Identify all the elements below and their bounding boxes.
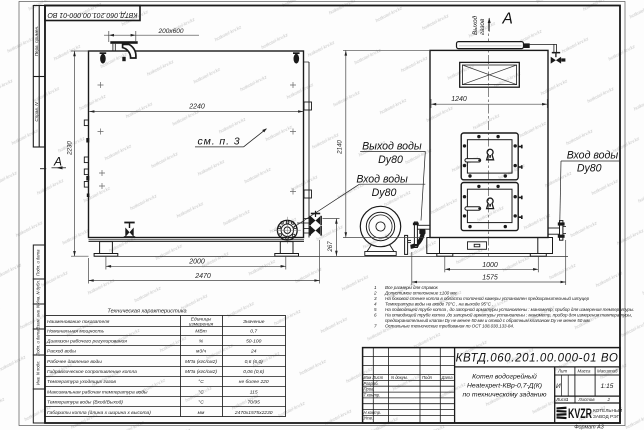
svg-text:см. п. 3: см. п. 3	[198, 136, 241, 148]
svg-text:24: 24	[250, 349, 257, 355]
svg-text:Перв. примен.: Перв. примен.	[34, 26, 39, 57]
svg-text:МВт: МВт	[195, 329, 206, 335]
svg-text:1240: 1240	[451, 96, 467, 103]
svg-text:м3/ч: м3/ч	[196, 349, 206, 355]
svg-text:1575: 1575	[482, 275, 498, 282]
svg-text:Номинальная мощность: Номинальная мощность	[47, 329, 105, 335]
svg-text:2470: 2470	[194, 273, 211, 280]
svg-text:°С: °С	[198, 379, 204, 385]
svg-text:Выход воды: Выход воды	[362, 140, 422, 152]
svg-text:КОТЕЛЬНЫЙ: КОТЕЛЬНЫЙ	[593, 406, 622, 413]
svg-text:1:15: 1:15	[601, 383, 614, 390]
svg-text:2: 2	[607, 397, 611, 402]
svg-text:мм: мм	[198, 411, 205, 416]
svg-text:0,06 (0,6): 0,06 (0,6)	[243, 369, 264, 375]
svg-text:2470х1575х2230: 2470х1575х2230	[234, 410, 273, 416]
svg-text:Максимальная рабочая температу: Максимальная рабочая температура воды	[47, 389, 148, 395]
svg-text:предохранительный клапан Dу н: предохранительный клапан Dу не менее 50 …	[385, 317, 591, 323]
svg-text:Выход: Выход	[471, 15, 479, 35]
svg-text:Расход воды: Расход воды	[47, 349, 76, 355]
svg-text:Гидравлическое сопротивление к: Гидравлическое сопротивление котла	[47, 369, 137, 375]
svg-text:200х600: 200х600	[158, 28, 184, 35]
svg-text:Температура воды на входе 70°: Температура воды на входе 70°С , на выхо…	[385, 302, 493, 307]
svg-text:1000: 1000	[482, 262, 498, 269]
svg-text:50-100: 50-100	[246, 339, 262, 345]
svg-text:2140: 2140	[336, 140, 343, 155]
svg-text:°С: °С	[198, 389, 204, 395]
svg-text:0,6 (6,0): 0,6 (6,0)	[245, 359, 264, 365]
svg-text:Температура уходящих газов: Температура уходящих газов	[47, 379, 116, 385]
svg-text:КВТД.060.201.00.000-01 ВО: КВТД.060.201.00.000-01 ВО	[456, 353, 619, 365]
svg-text:Наименование показателя: Наименование показателя	[47, 319, 110, 325]
svg-text:Масса: Масса	[578, 369, 592, 374]
svg-text:Взам. инв. N: Взам. инв. N	[36, 304, 41, 329]
svg-text:2: 2	[373, 291, 377, 296]
svg-text:На подводящей трубе котла , д: На подводящей трубе котла , до запорной …	[385, 306, 634, 312]
svg-text:И: И	[556, 383, 561, 390]
svg-text:267: 267	[327, 241, 334, 253]
svg-text:Формат А3: Формат А3	[574, 424, 604, 430]
svg-text:Dy80: Dy80	[577, 162, 602, 174]
svg-text:Температура воды (Вход/Выход): Температура воды (Вход/Выход)	[47, 400, 123, 406]
svg-text:2000: 2000	[188, 259, 205, 266]
svg-text:Справ. N: Справ. N	[34, 102, 39, 122]
svg-text:Изм Лист: Изм Лист	[364, 375, 384, 380]
svg-text:KVZR: KVZR	[568, 406, 592, 421]
svg-text:0,7: 0,7	[250, 329, 257, 335]
svg-text:Вход воды: Вход воды	[567, 150, 619, 162]
svg-text:На боковой стенке котла в обла: На боковой стенке котла в области топочн…	[385, 295, 590, 301]
svg-text:Инв. N дубл.: Инв. N дубл.	[36, 280, 41, 304]
svg-text:Лит: Лит	[557, 369, 567, 374]
svg-text:70/95: 70/95	[248, 400, 261, 406]
svg-text:Подп. и дата: Подп. и дата	[36, 249, 41, 276]
svg-text:не более 220: не более 220	[239, 379, 269, 385]
svg-text:Н.контр.: Н.контр.	[364, 410, 382, 415]
svg-text:Пров.: Пров.	[364, 387, 375, 392]
svg-text:Heatexpert-КВр-0,7-Д(К): Heatexpert-КВр-0,7-Д(К)	[467, 383, 542, 390]
svg-text:2230: 2230	[67, 141, 74, 156]
svg-text:2240: 2240	[188, 104, 205, 111]
svg-text:измерения: измерения	[189, 323, 214, 328]
svg-text:газов: газов	[479, 18, 486, 35]
svg-text:%: %	[199, 339, 204, 345]
svg-text:Допустимое отклонение ±100 мм: Допустимое отклонение ±100 мм.	[384, 291, 458, 296]
svg-text:МПа (кгс/см2): МПа (кгс/см2)	[185, 359, 217, 365]
svg-text:А: А	[502, 11, 513, 28]
svg-text:А: А	[53, 155, 62, 169]
svg-text:Рабочее давление воды: Рабочее давление воды	[47, 359, 102, 365]
svg-text:Утв.: Утв.	[364, 416, 374, 421]
svg-text:Т.контр.: Т.контр.	[364, 392, 381, 397]
svg-text:Диапазон рабочего регулировани: Диапазон рабочего регулирования	[46, 339, 127, 345]
svg-text:Разраб.: Разраб.	[364, 381, 379, 386]
svg-text:N докум.: N докум.	[391, 375, 408, 380]
svg-text:ЗАВОД РЭП: ЗАВОД РЭП	[593, 414, 620, 419]
svg-text:Инв. N подл.: Инв. N подл.	[36, 360, 41, 384]
svg-text:МПа (кгс/см2): МПа (кгс/см2)	[185, 369, 217, 375]
svg-text:Котел водогрейный: Котел водогрейный	[472, 373, 537, 381]
svg-text:На отводящей трубе котла ,до з: На отводящей трубе котла ,до запорной ар…	[385, 312, 632, 318]
svg-text:115: 115	[250, 389, 258, 395]
svg-text:Дата: Дата	[441, 375, 454, 380]
svg-text:Значение: Значение	[243, 319, 265, 325]
svg-text:Вход воды: Вход воды	[356, 174, 408, 186]
svg-text:°С: °С	[198, 400, 204, 406]
svg-text:Техническая характеристика: Техническая характеристика	[107, 309, 186, 315]
svg-text:Масштаб: Масштаб	[597, 369, 618, 374]
svg-text:Подп. и дата: Подп. и дата	[36, 329, 41, 356]
svg-text:Листов: Листов	[578, 397, 596, 402]
svg-text:Подп: Подп	[422, 375, 433, 380]
svg-text:Dy80: Dy80	[372, 187, 397, 199]
svg-text:Все размеры для справок: Все размеры для справок	[385, 285, 439, 290]
svg-text:Остальные технические требован: Остальные технические требования по ОСТ …	[385, 324, 514, 329]
svg-text:по техническому заданию: по техническому заданию	[463, 391, 547, 399]
svg-text:КВТД.060.201.00.000-01 ВО: КВТД.060.201.00.000-01 ВО	[47, 11, 138, 18]
svg-text:Габариты котла (длина х ширина: Габариты котла (длина х ширина х высота)	[47, 410, 151, 416]
svg-text:Dy80: Dy80	[378, 154, 403, 166]
